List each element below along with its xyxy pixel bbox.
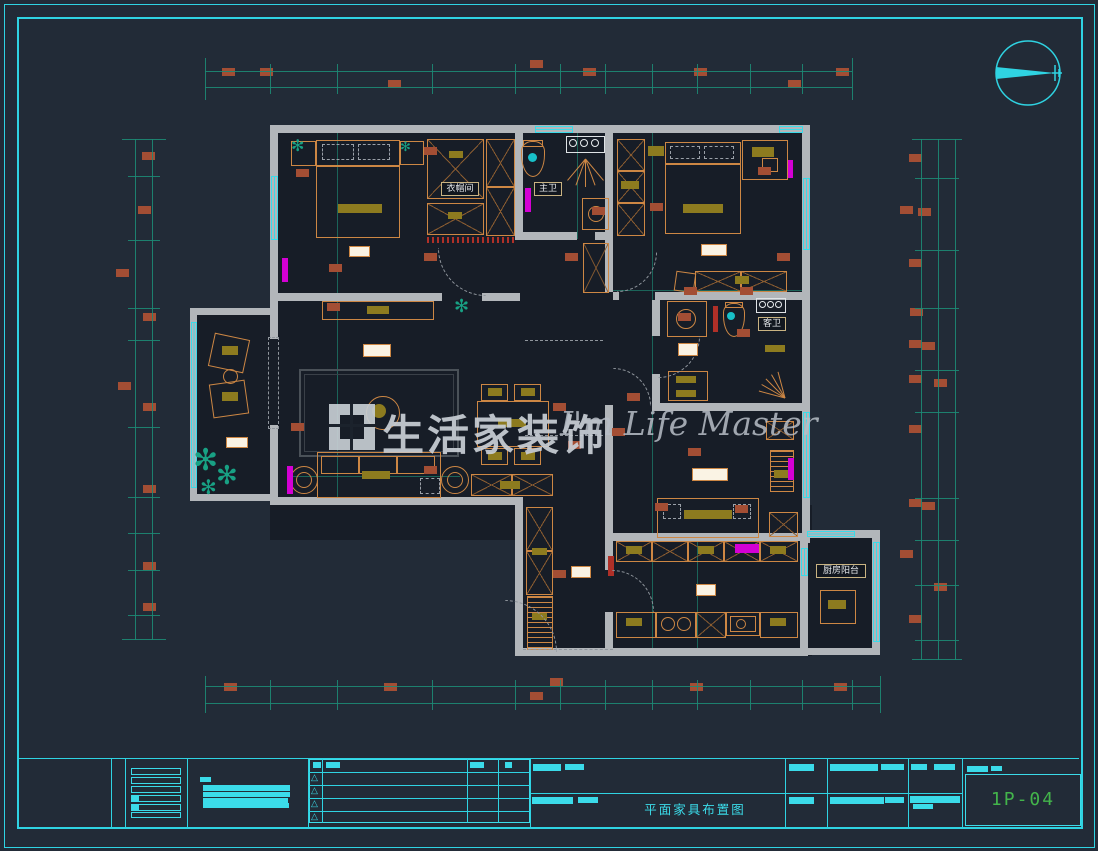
title-block-mark	[470, 762, 484, 768]
revision-table-row	[309, 772, 530, 773]
title-band-divider	[187, 758, 188, 827]
title-block-text-bar	[565, 764, 584, 770]
title-block-text-bar	[532, 797, 573, 804]
title-block-text-bar	[789, 764, 814, 771]
title-block-text-bar	[200, 777, 211, 782]
title-block-field	[131, 812, 181, 818]
room-label: 客卫	[758, 317, 786, 331]
north-compass-icon	[991, 36, 1065, 110]
title-block-field	[131, 768, 181, 775]
title-block-text-bar	[203, 803, 289, 808]
revision-triangle-icon: △	[311, 771, 321, 783]
title-block-text-bar	[881, 764, 904, 770]
revision-triangle-icon: △	[311, 797, 321, 809]
revision-table-row	[309, 798, 530, 799]
revision-table-col	[467, 759, 468, 823]
title-block-text-bar	[934, 764, 955, 770]
title-block-text-bar	[967, 766, 988, 772]
drawing-title: 平面家具布置图	[595, 799, 795, 818]
title-block-field	[131, 777, 181, 784]
title-band-divider	[125, 758, 126, 827]
cad-sheet: ✻✻✻✻✻✻衣帽间主卫客卫厨房阳台 生活家装饰 I'm Life Master …	[0, 0, 1098, 851]
title-block-text-bar	[911, 764, 927, 770]
title-block-text-bar	[913, 804, 933, 809]
title-block-text-bar	[830, 797, 884, 804]
title-block-field	[131, 795, 181, 802]
watermark-brand-en: I'm Life Master	[560, 404, 818, 443]
revision-table-row	[309, 811, 530, 812]
title-block-mark	[326, 762, 340, 768]
revision-table-col	[498, 759, 499, 823]
revision-triangle-icon: △	[311, 784, 321, 796]
title-band-divider	[530, 793, 962, 794]
title-block-text-bar	[830, 764, 878, 771]
title-block-field	[131, 786, 181, 793]
title-band-top	[17, 758, 1079, 759]
revision-table-row	[309, 785, 530, 786]
title-band-divider	[962, 758, 963, 827]
room-label: 厨房阳台	[816, 564, 866, 578]
room-label: 主卫	[534, 182, 562, 196]
title-block-mark	[313, 762, 321, 768]
revision-table	[309, 759, 530, 823]
brand-grid-logo-icon	[350, 404, 353, 450]
revision-table-col	[322, 759, 323, 823]
title-block-text-bar	[910, 796, 960, 803]
title-block-text-bar	[533, 764, 561, 771]
room-label: 衣帽间	[441, 182, 479, 196]
title-block-text-bar	[203, 792, 290, 797]
title-block-text-bar	[203, 785, 290, 791]
title-band-divider	[111, 758, 112, 827]
title-block-text-bar	[885, 797, 904, 803]
title-block-mark	[505, 762, 512, 768]
drawing-number: 1P-04	[965, 789, 1081, 810]
title-block-text-bar	[991, 766, 1002, 771]
revision-triangle-icon: △	[311, 810, 321, 822]
title-block-field	[131, 804, 181, 811]
